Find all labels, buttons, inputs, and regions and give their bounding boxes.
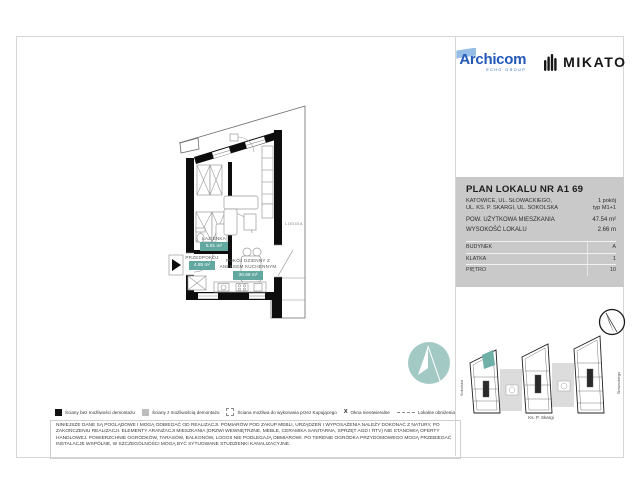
area-value: 47.54 m² <box>592 217 616 223</box>
legend-item-solid-walls: Ściany bez możliwości demontażu <box>55 409 135 416</box>
height-value: 2.66 m <box>598 227 616 233</box>
gray-square-icon <box>142 409 149 416</box>
legend-item-removable-walls: Ściany z możliwością demontażu <box>142 409 219 416</box>
dashed-square-icon <box>226 408 234 416</box>
room-area-living: 36.68 m² <box>233 271 263 280</box>
room-area-bathroom: 5.81 m² <box>200 242 228 251</box>
archicom-subtext: ECHO GROUP <box>486 68 526 72</box>
street-label-bottom: Ks. P. Skargi <box>528 415 553 420</box>
room-area-hall: 4.85 m² <box>189 261 215 270</box>
plan-document-page: Archicom ECHO GROUP MIKATO <box>0 0 640 480</box>
unit-address: KATOWICE, UL. SŁOWACKIEGO, UL. KS. P. SK… <box>466 198 558 211</box>
north-compass-teal-icon <box>406 341 452 387</box>
street-label-right: Słowackiego <box>616 371 621 394</box>
black-square-icon <box>55 409 62 416</box>
room-label-living-1: POKÓJ DZIENNY Z <box>215 258 281 263</box>
x-symbol-icon: X <box>344 409 348 415</box>
room-label-bathroom: ŁAZIENKA <box>193 236 235 241</box>
mikato-building-icon <box>544 54 559 71</box>
brand-header: Archicom ECHO GROUP MIKATO <box>462 44 624 80</box>
unit-info-panel: PLAN LOKALU NR A1 69 KATOWICE, UL. SŁOWA… <box>456 177 624 287</box>
table-row: BUDYNEK A <box>466 241 616 253</box>
area-label: POW. UŻYTKOWA MIESZKANIA <box>466 217 555 223</box>
legend-item-lowered-ceiling: Lokalne obniżenia <box>397 410 455 415</box>
disclaimer-text: NINIEJSZE DANE SĄ POGLĄDOWE I MOGĄ ODBIE… <box>50 420 461 459</box>
room-label-living-2: ANEKSEM KUCHENNYM <box>215 264 281 269</box>
height-label: WYSOKOŚĆ LOKALU <box>466 227 527 233</box>
archicom-wordmark: Archicom <box>459 53 526 67</box>
mikato-logo: MIKATO <box>544 54 627 71</box>
unit-type: 1 pokój typ M1+1 <box>593 198 616 211</box>
legend-item-optional-wall: Ściana możliwa do wykonania przez Kupują… <box>226 408 336 416</box>
table-row: KLATKA 1 <box>466 253 616 265</box>
table-divider <box>587 241 588 276</box>
site-map-buildings <box>470 336 604 413</box>
plan-legend: Ściany bez możliwości demontażu Ściany z… <box>55 406 455 418</box>
unit-title: PLAN LOKALU NR A1 69 <box>466 184 616 195</box>
room-label-loggia: LOGGIA <box>283 221 305 226</box>
floor-plan <box>160 80 355 330</box>
site-map: Ks. P. Skargi Sokolska Słowackiego <box>457 333 625 421</box>
archicom-logo: Archicom ECHO GROUP <box>459 53 526 72</box>
dashed-line-icon <box>397 412 415 413</box>
table-row: PIĘTRO 10 <box>466 264 616 276</box>
unit-location-table: BUDYNEK A KLATKA 1 PIĘTRO 10 <box>466 241 616 276</box>
legend-item-fixed-windows: X Okna nieotwieralne <box>344 409 390 415</box>
street-label-left: Sokolska <box>459 379 464 396</box>
mikato-wordmark: MIKATO <box>563 54 627 70</box>
